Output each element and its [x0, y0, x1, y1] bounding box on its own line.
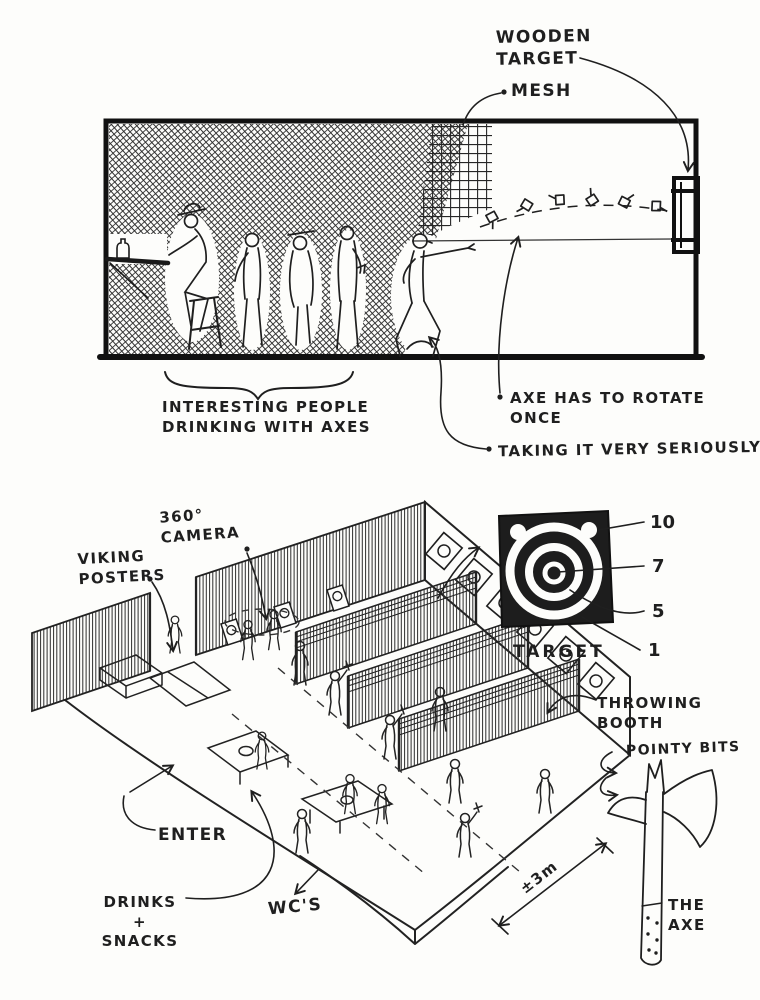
people-caption-line2: DRINKING WITH AXES — [162, 418, 371, 438]
drinks-line1: DRINKS — [98, 893, 182, 913]
posters-leader — [152, 582, 173, 650]
drinks-line2: + — [98, 913, 182, 933]
posters-label: VIKING POSTERS — [77, 546, 166, 590]
the-axe-line1: THE — [668, 896, 706, 916]
target-score-1: 1 — [648, 639, 661, 662]
walkway-line — [232, 714, 425, 874]
booth-label: THROWING BOOTH — [597, 694, 702, 733]
back-wall-line — [412, 239, 672, 241]
grip-dots — [646, 916, 658, 954]
pointy-arrow-2 — [601, 778, 616, 795]
sketch-drawing — [0, 0, 760, 1000]
wooden-target-line1: WOODEN — [496, 25, 592, 49]
axe-left-blade — [608, 798, 646, 824]
booth-line1: THROWING — [597, 694, 702, 714]
target-score-5: 5 — [652, 600, 665, 623]
wc-label: WC'S — [267, 894, 323, 921]
axe-handle — [641, 792, 663, 965]
rotate-note-line1: AXE HAS TO ROTATE — [510, 389, 705, 409]
wc-arrow — [296, 870, 318, 893]
booth-line2: BOOTH — [597, 714, 702, 734]
rotate-note-line2: ONCE — [510, 409, 705, 429]
axe-right-blade — [664, 770, 716, 847]
wooden-target-line2: TARGET — [496, 47, 592, 71]
camera-label: 360° CAMERA — [159, 503, 241, 547]
axe-trajectory — [480, 187, 669, 230]
target-score-10: 10 — [650, 511, 675, 534]
target-score-7: 7 — [652, 555, 665, 578]
enter-arrow — [130, 766, 172, 792]
axe-spikes — [647, 760, 664, 792]
drinks-label: DRINKS + SNACKS — [98, 893, 182, 952]
rotate-note: AXE HAS TO ROTATE ONCE — [510, 389, 705, 428]
mesh-label: MESH — [511, 80, 572, 102]
people-brace — [165, 372, 353, 399]
people-caption: INTERESTING PEOPLE DRINKING WITH AXES — [162, 398, 371, 437]
the-axe-line2: AXE — [668, 916, 706, 936]
dimension-3m — [492, 838, 613, 934]
enter-label: ENTER — [158, 824, 227, 846]
target-caption: TARGET — [513, 641, 605, 663]
wooden-target-label: WOODEN TARGET — [496, 25, 593, 71]
drinks-line3: SNACKS — [98, 932, 182, 952]
sketch-sheet: WOODEN TARGET MESH INTERESTING PEOPLE DR… — [0, 0, 760, 1000]
drinks-counter — [208, 731, 288, 784]
the-axe-label: THE AXE — [668, 896, 706, 935]
people-caption-line1: INTERESTING PEOPLE — [162, 398, 371, 418]
enter-leader — [123, 796, 155, 830]
wooden-target-leader — [580, 58, 688, 170]
rotate-note-leader — [499, 238, 518, 393]
